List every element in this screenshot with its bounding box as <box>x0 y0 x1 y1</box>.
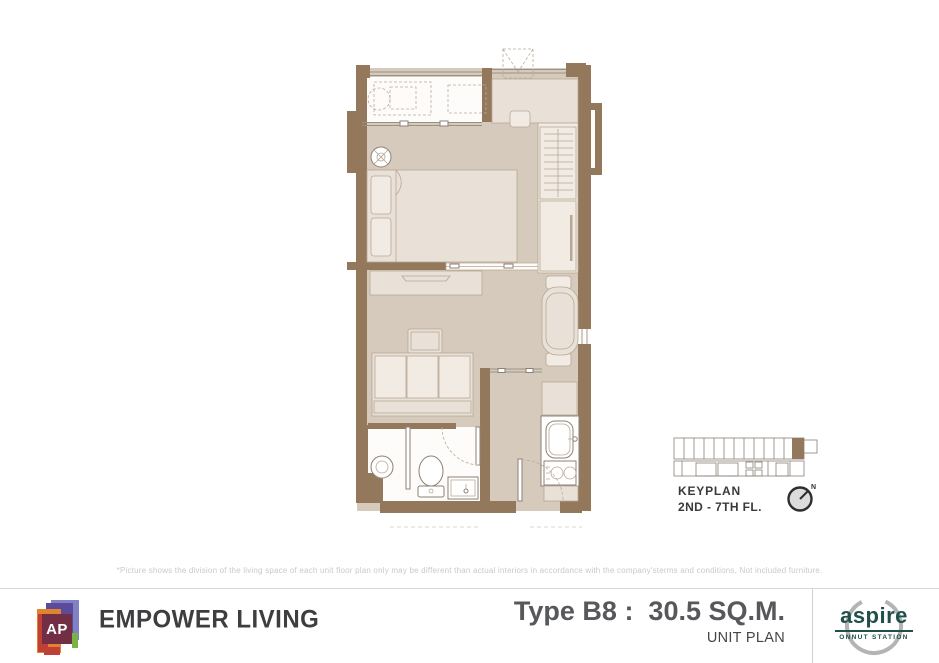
washing-machine <box>371 456 393 478</box>
unit-type-title: Type B8 : 30.5 SQ.M. <box>380 596 785 627</box>
aspire-brand-text: aspire <box>824 603 924 629</box>
footer-divider <box>0 588 939 589</box>
brand-title: EMPOWER LIVING <box>99 606 319 635</box>
kitchen-sink <box>546 421 577 458</box>
svg-text:N: N <box>811 484 816 491</box>
plan-label: UNIT PLAN <box>380 630 785 646</box>
north-arrow-icon: N <box>786 478 822 516</box>
ap-logo-green-layer <box>72 633 78 648</box>
shower-partition <box>406 427 410 489</box>
stool <box>510 111 530 127</box>
toilet <box>418 456 444 497</box>
fridge <box>542 382 577 415</box>
footer-vertical-divider <box>812 589 813 663</box>
dining-table <box>542 287 578 355</box>
aspire-underline <box>835 630 913 632</box>
ap-logo: AP <box>37 600 81 656</box>
ap-logo-red-accent <box>44 647 60 655</box>
bathroom-sink <box>448 477 478 499</box>
highlighted-unit <box>792 438 804 459</box>
aspire-location-text: ONNUT STATION <box>824 634 924 641</box>
ap-logo-monogram: AP <box>42 614 72 644</box>
keyplan-floors: 2ND - 7TH FL. <box>678 500 762 514</box>
pillow <box>371 176 391 214</box>
dining-window <box>578 329 591 344</box>
cabinet-handle <box>570 215 573 261</box>
floor-plan <box>290 35 650 535</box>
unit-plan-page: KEYPLAN 2ND - 7TH FL. N *Picture shows t… <box>0 0 939 663</box>
disclaimer-text: *Picture shows the division of the livin… <box>0 566 939 575</box>
stove <box>544 461 576 485</box>
keyplan-drawing <box>668 424 823 484</box>
sofa <box>372 353 473 416</box>
fan-stool <box>371 147 391 167</box>
built-in-closet <box>492 79 578 123</box>
aspire-logo: aspire ONNUT STATION <box>824 590 924 663</box>
keyplan-title: KEYPLAN <box>678 484 741 498</box>
tv-cabinet <box>370 271 482 295</box>
coffee-table <box>408 329 442 353</box>
pillow <box>371 218 391 256</box>
